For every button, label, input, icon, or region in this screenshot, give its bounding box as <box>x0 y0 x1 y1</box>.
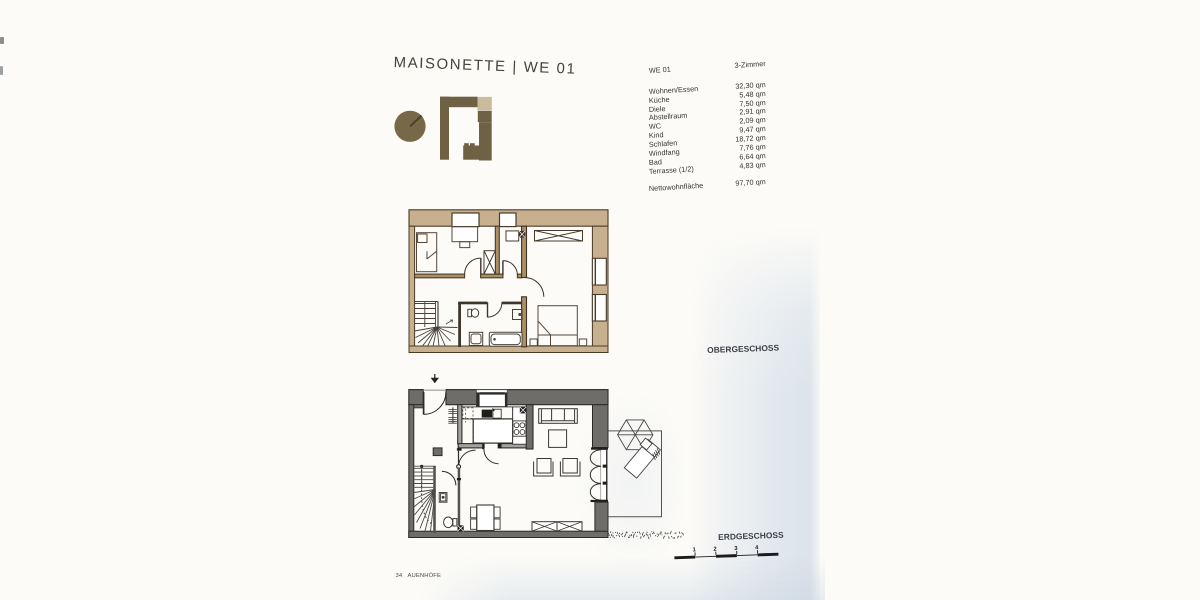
svg-text:2: 2 <box>713 547 716 553</box>
svg-text:3: 3 <box>734 546 738 552</box>
svg-text:4: 4 <box>755 545 759 551</box>
svg-text:1: 1 <box>693 547 697 553</box>
